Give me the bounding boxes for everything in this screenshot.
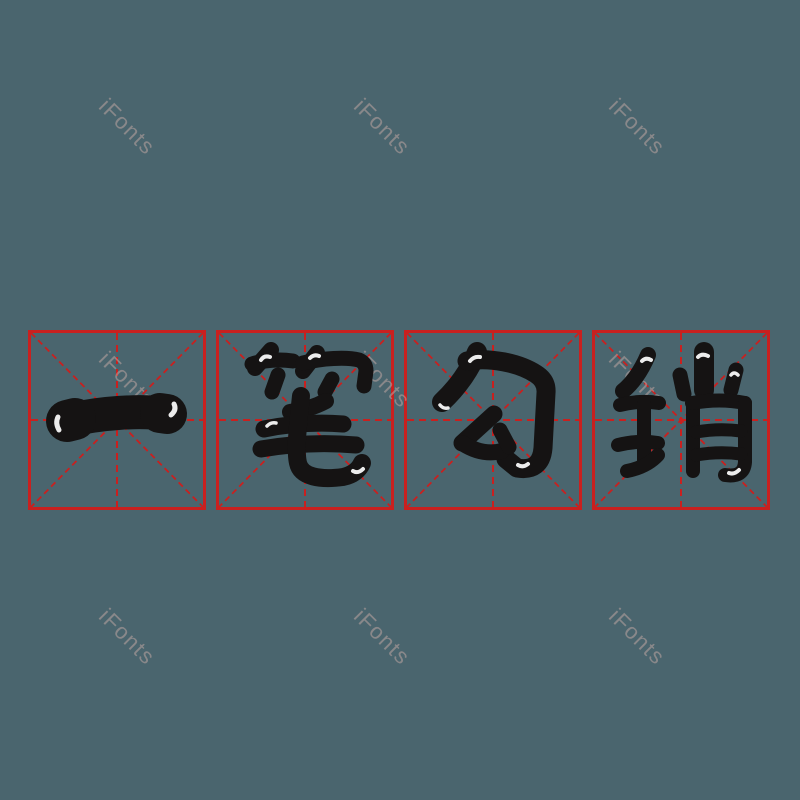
ink-highlight — [518, 464, 528, 466]
ifonts-watermark: iFonts — [348, 603, 415, 670]
ifonts-watermark: iFonts — [348, 93, 415, 160]
ink-highlight — [642, 359, 651, 361]
ifonts-watermark: iFonts — [93, 603, 160, 670]
ink-strokes — [442, 352, 546, 469]
ifonts-watermark: iFonts — [93, 93, 160, 160]
xiao-yue-top — [692, 401, 745, 404]
gou-si-bottom — [462, 443, 502, 452]
ifonts-watermark: iFonts — [603, 603, 670, 670]
xiao-yue-hook — [725, 403, 745, 475]
mizige-cell-4 — [592, 330, 770, 510]
ink-strokes — [252, 350, 366, 478]
bi-mao-heng2 — [261, 444, 356, 449]
yi-stroke-end — [67, 419, 75, 421]
ink-strokes — [67, 412, 167, 421]
ifonts-watermark: iFonts — [603, 93, 670, 160]
mizige-cell-1 — [28, 330, 206, 510]
xiao-yue-heng1 — [696, 430, 741, 432]
bi-bamboo-left-tick — [272, 375, 278, 392]
xiao-yue-heng2 — [696, 453, 741, 455]
char-yi-glyph — [28, 330, 206, 510]
ink-highlight — [57, 417, 59, 430]
gou-si-dot — [500, 430, 509, 447]
character-grid-row — [28, 330, 770, 510]
ink-highlight — [731, 373, 738, 375]
char-gou-glyph — [404, 330, 582, 510]
ink-highlight — [698, 355, 708, 357]
char-xiao-glyph — [592, 330, 770, 510]
ink-strokes — [618, 352, 745, 475]
bi-bamboo-left-heng — [252, 360, 293, 364]
yi-stroke-end — [160, 413, 167, 414]
xiao-left-dot — [680, 375, 684, 394]
bi-bamboo-right-tick — [325, 379, 332, 392]
char-bi-glyph — [216, 330, 394, 510]
mizige-cell-2 — [216, 330, 394, 510]
mizige-cell-3 — [404, 330, 582, 510]
font-preview-canvas: iFonts iFonts iFonts iFonts iFonts iFont… — [0, 0, 800, 800]
